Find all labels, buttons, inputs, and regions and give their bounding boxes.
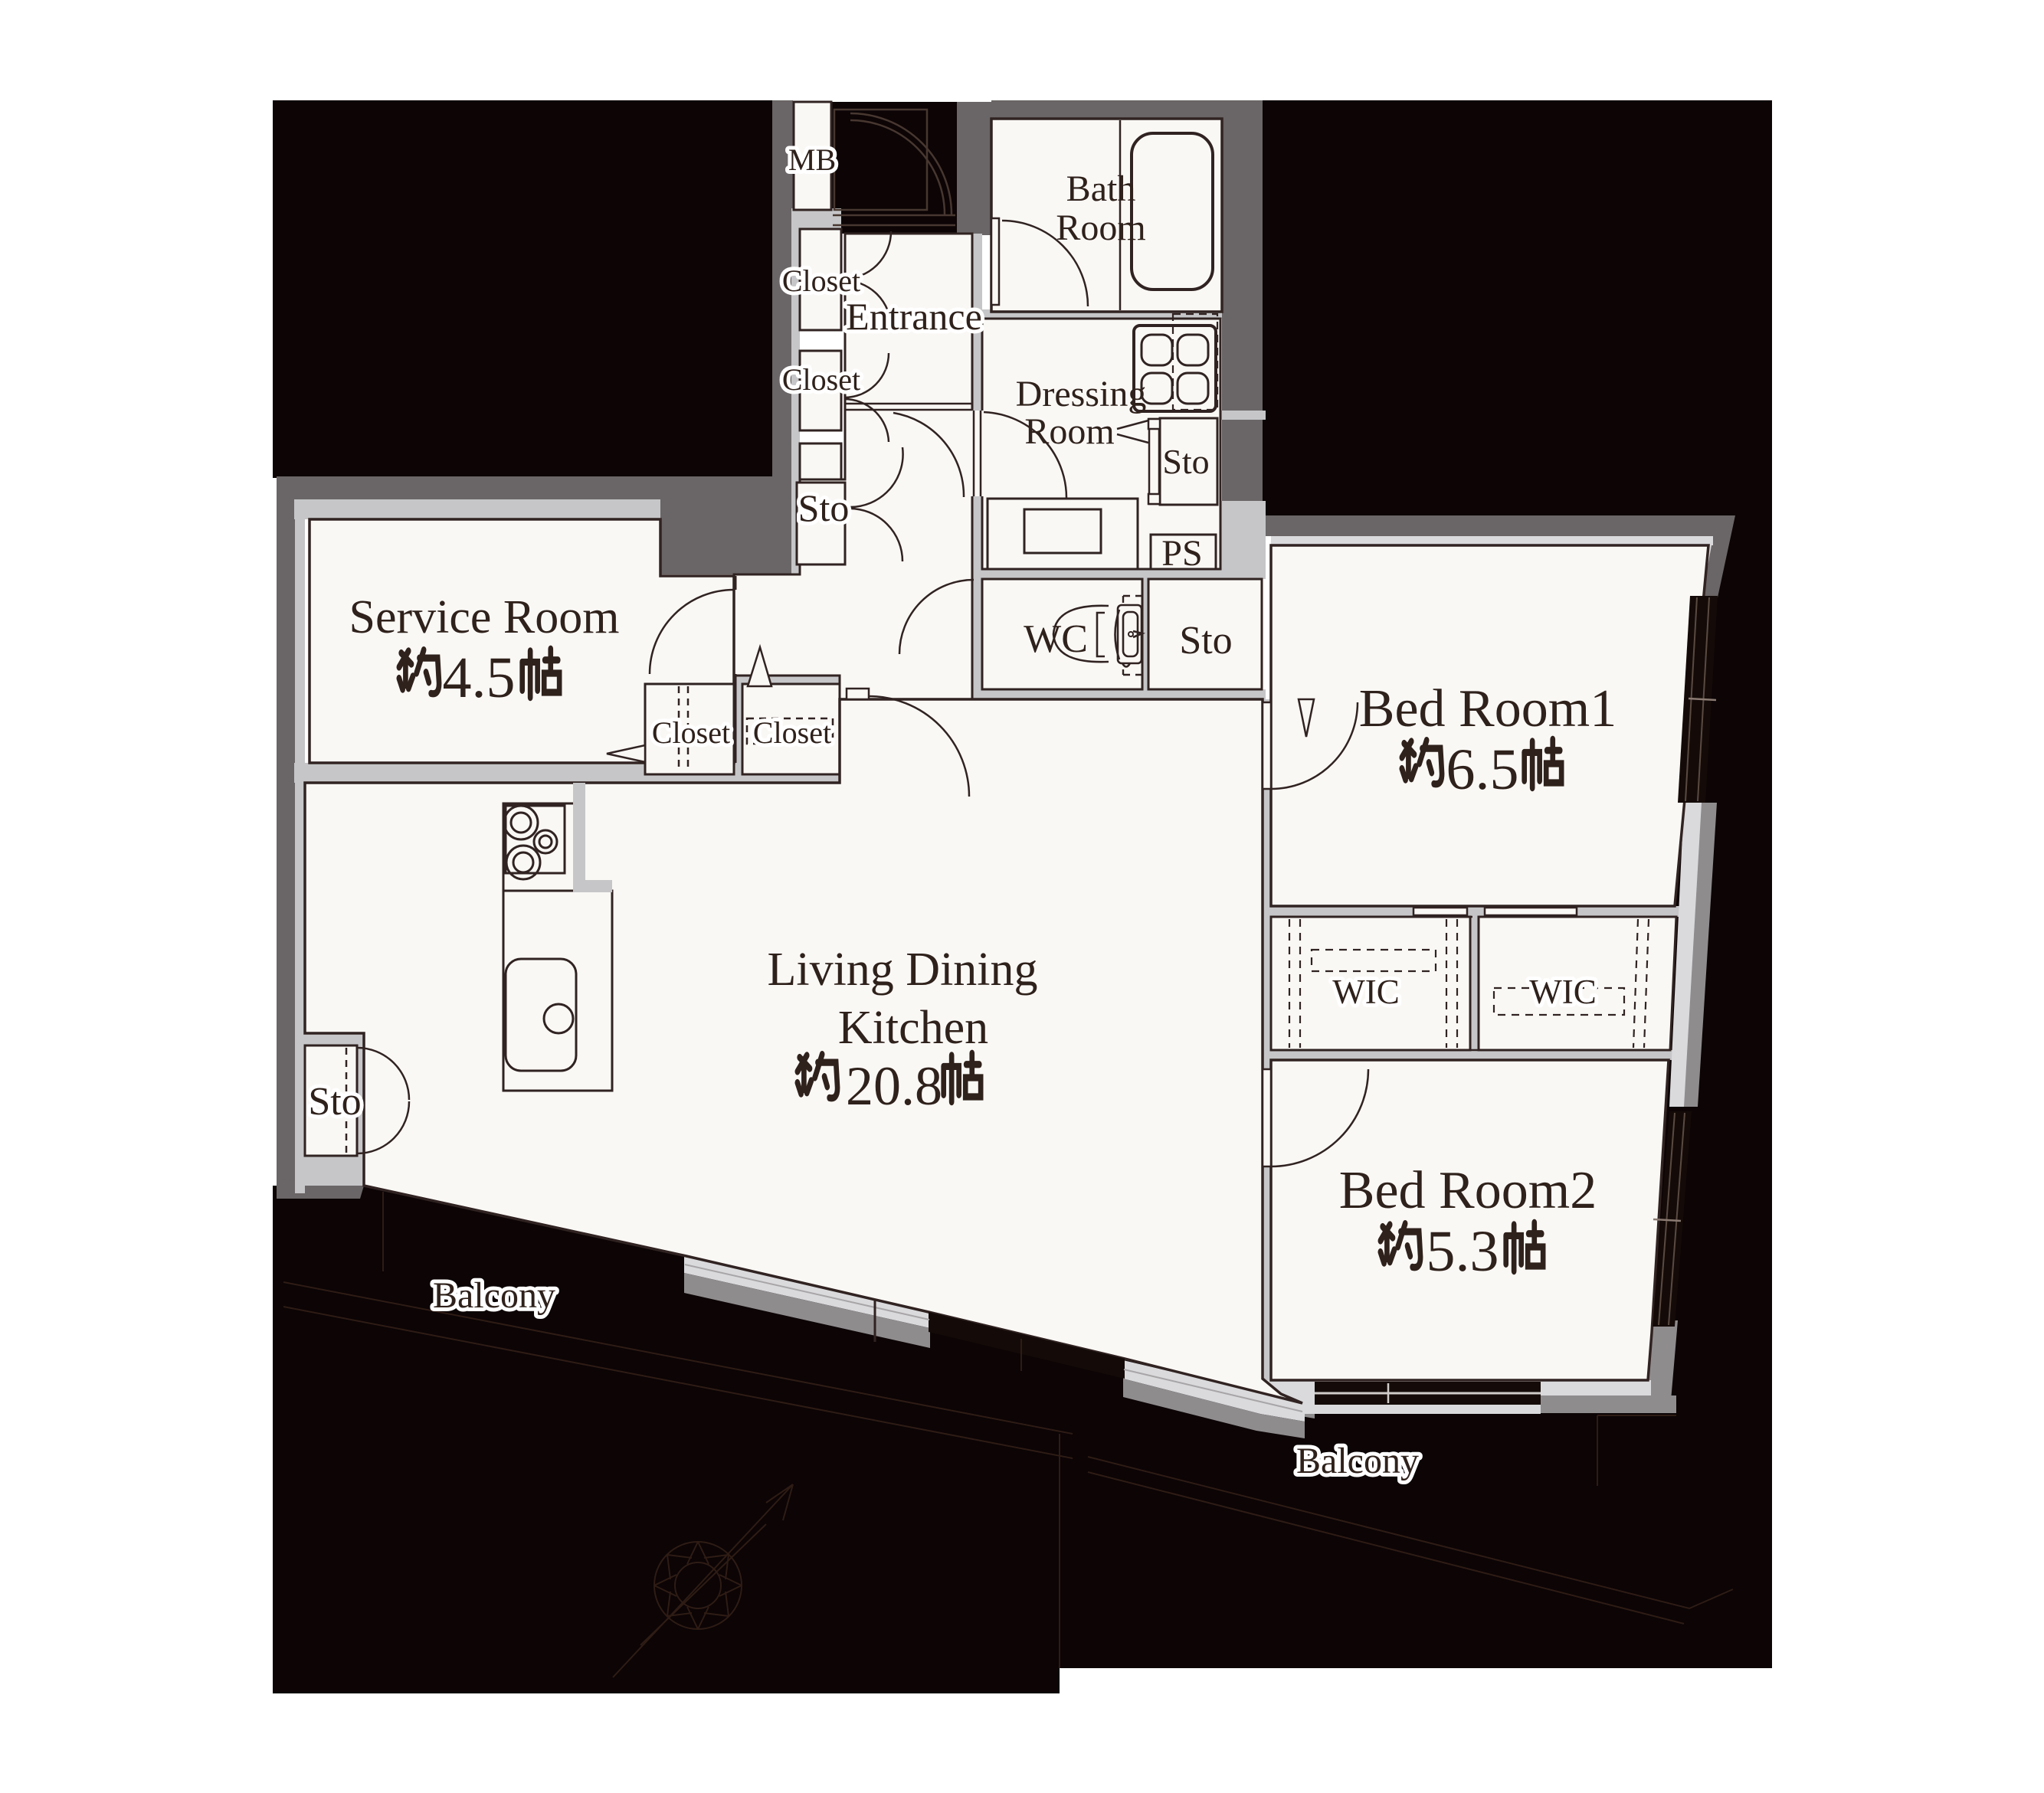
svg-text:20.8: 20.8 — [846, 1055, 942, 1117]
svg-text:Room: Room — [1056, 208, 1145, 248]
svg-text:6.5: 6.5 — [1446, 738, 1519, 802]
svg-text:Sto: Sto — [1162, 442, 1209, 481]
svg-text:Closet: Closet — [782, 263, 860, 298]
svg-text:Sto: Sto — [1179, 619, 1232, 663]
svg-text:Balcony: Balcony — [1296, 1441, 1419, 1481]
svg-text:Closet: Closet — [652, 715, 730, 750]
svg-text:Dressing: Dressing — [1016, 374, 1147, 414]
svg-text:Room: Room — [1024, 411, 1114, 452]
svg-text:MB: MB — [788, 142, 836, 177]
svg-text:PS: PS — [1161, 533, 1202, 574]
svg-text:Sto: Sto — [308, 1080, 361, 1124]
svg-text:Bath: Bath — [1066, 169, 1136, 209]
svg-text:Bed Room1: Bed Room1 — [1359, 679, 1617, 738]
svg-text:Kitchen: Kitchen — [838, 1002, 988, 1054]
svg-text:Sto: Sto — [798, 486, 850, 529]
svg-text:Service Room: Service Room — [349, 591, 620, 643]
svg-text:4.5: 4.5 — [443, 646, 516, 710]
svg-text:Closet: Closet — [753, 715, 831, 750]
svg-text:5.3: 5.3 — [1427, 1219, 1499, 1284]
svg-text:Living Dining: Living Dining — [767, 944, 1037, 996]
svg-text:Balcony: Balcony — [433, 1275, 555, 1316]
svg-text:WC: WC — [1024, 617, 1088, 661]
svg-text:Entrance: Entrance — [846, 295, 982, 338]
svg-text:WIC: WIC — [1332, 973, 1399, 1011]
svg-text:Closet: Closet — [782, 362, 860, 397]
svg-text:Bed Room2: Bed Room2 — [1339, 1161, 1597, 1220]
svg-text:WIC: WIC — [1529, 973, 1596, 1011]
